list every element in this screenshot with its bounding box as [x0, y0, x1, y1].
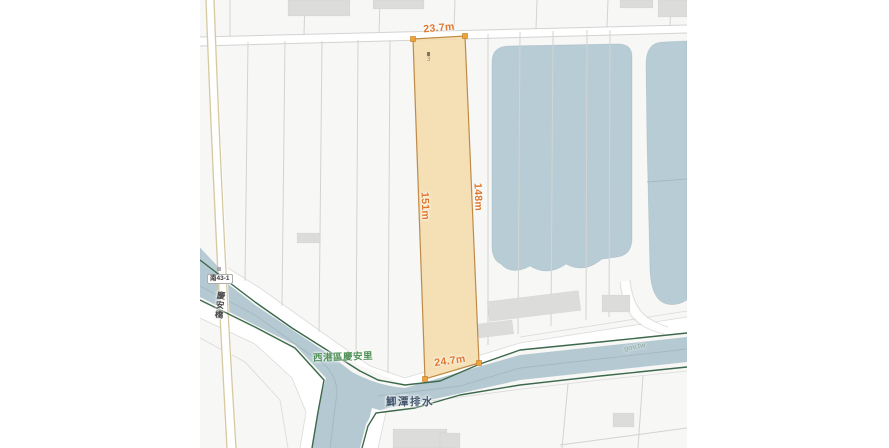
road-sign-icon — [217, 267, 221, 271]
pond-large — [492, 44, 632, 271]
local-road — [206, 0, 236, 448]
road-number-plate: 南43-1 — [207, 274, 233, 284]
parcel-annotation-text: 3 — [427, 57, 430, 63]
measurement-left: 151m — [418, 186, 431, 226]
measurement-right: 148m — [471, 177, 484, 217]
parcel-annotation: 3 — [427, 52, 430, 63]
map-layers — [200, 0, 687, 448]
parcel-annotation-icon — [427, 52, 430, 56]
pond-right — [646, 41, 687, 305]
map-canvas[interactable]: 23.7m 24.7m 151m 148m 西港區慶安里 鯽潭排水 南43-1 … — [200, 0, 687, 448]
page-background: 23.7m 24.7m 151m 148m 西港區慶安里 鯽潭排水 南43-1 … — [0, 0, 889, 448]
road-name-label: 西港區慶安里 — [313, 348, 373, 364]
canal-name-label: 鯽潭排水 — [386, 394, 434, 409]
